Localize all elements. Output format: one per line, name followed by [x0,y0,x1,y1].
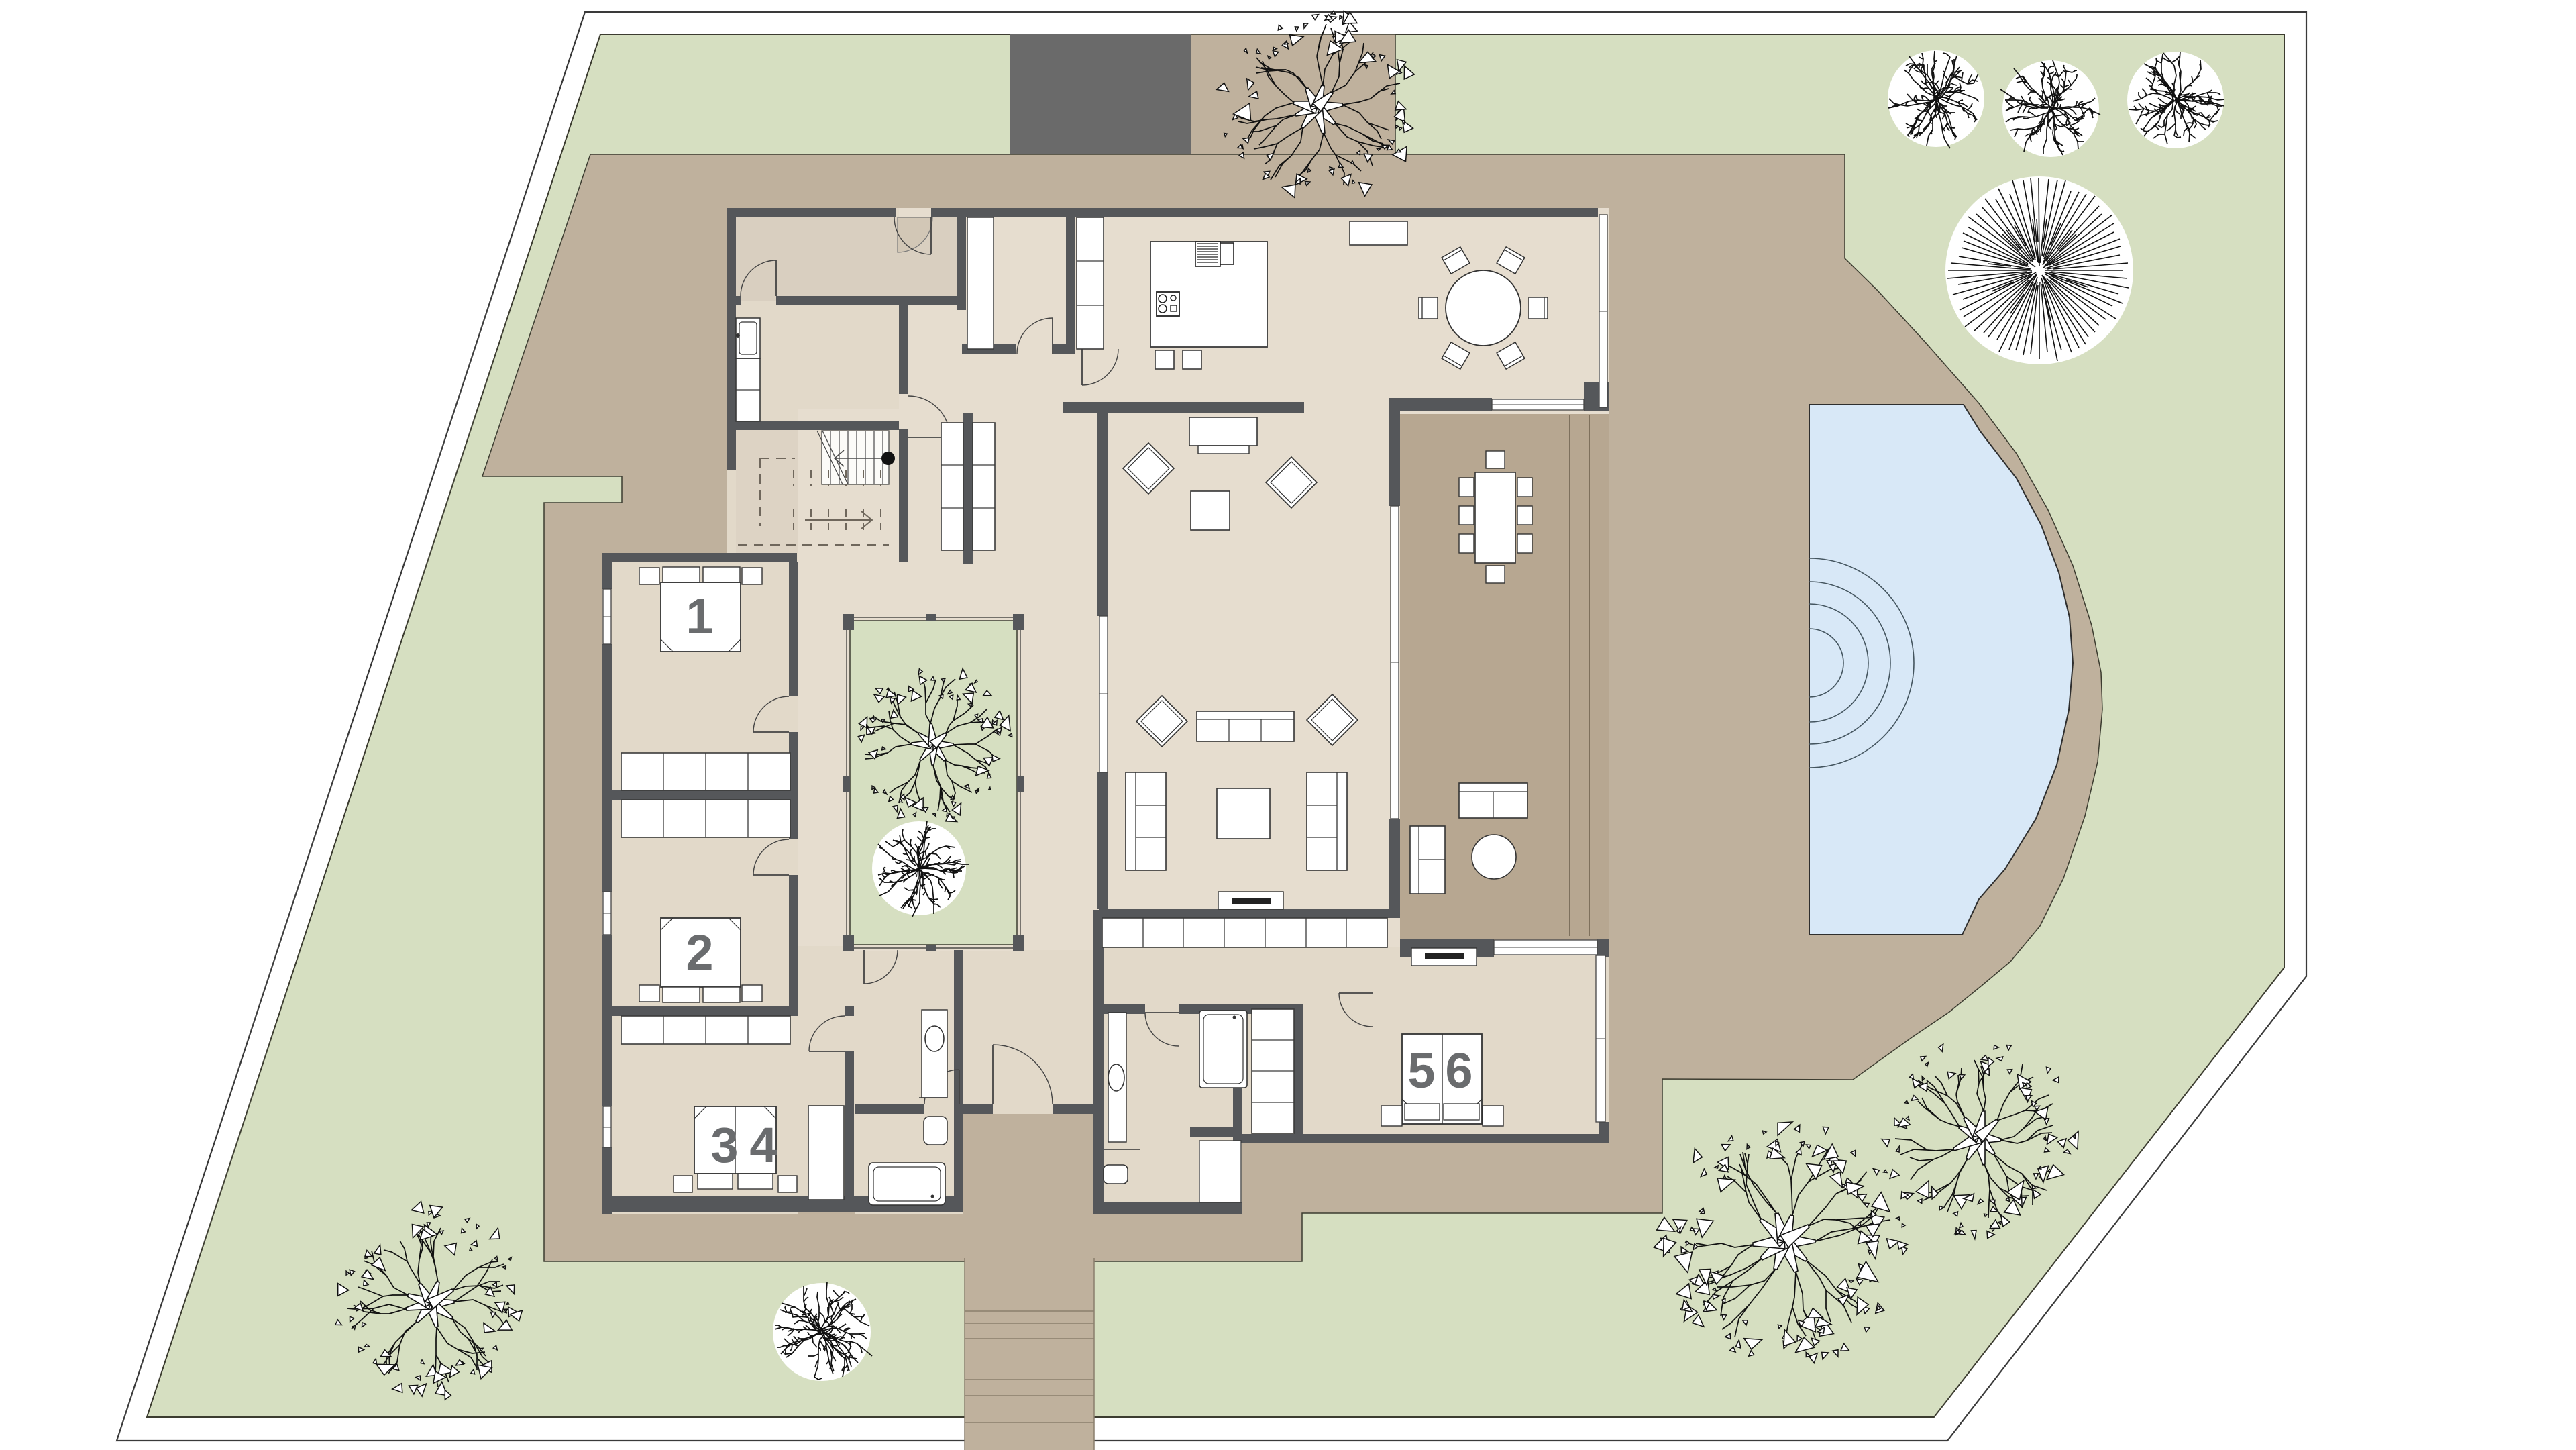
svg-text:1: 1 [686,588,713,644]
svg-text:2: 2 [686,925,713,980]
svg-text:3: 3 [710,1117,738,1173]
svg-text:6: 6 [1445,1043,1472,1098]
svg-text:4: 4 [749,1117,777,1173]
svg-text:5: 5 [1407,1043,1435,1098]
